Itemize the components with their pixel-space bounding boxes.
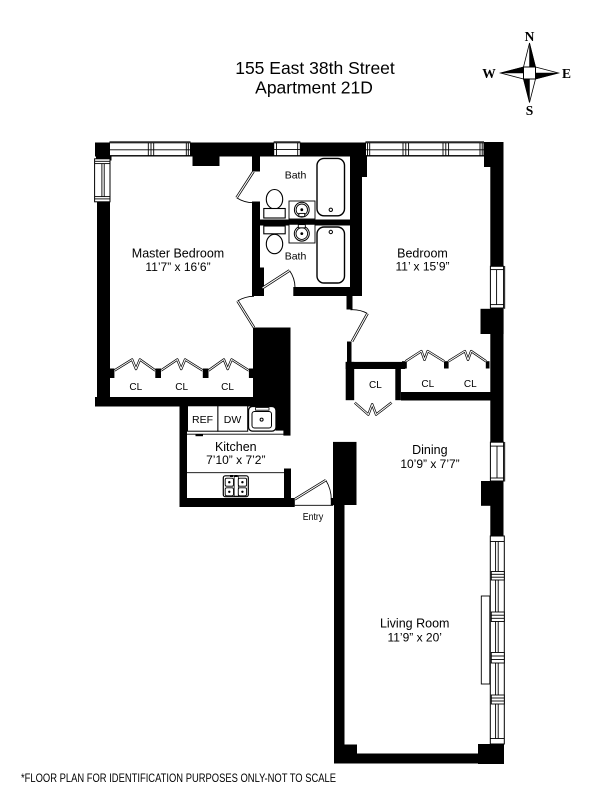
svg-text:CL: CL bbox=[175, 382, 188, 393]
svg-text:CL: CL bbox=[464, 379, 477, 390]
svg-text:CL: CL bbox=[221, 382, 234, 393]
svg-text:11’ x 15’9”: 11’ x 15’9” bbox=[395, 260, 449, 274]
svg-text:155 East 38th Street: 155 East 38th Street bbox=[235, 58, 395, 78]
svg-text:Apartment 21D: Apartment 21D bbox=[255, 78, 373, 98]
svg-text:Kitchen: Kitchen bbox=[215, 440, 257, 454]
svg-text:W: W bbox=[482, 66, 496, 81]
svg-text:CL: CL bbox=[369, 380, 382, 391]
svg-text:11’7” x 16’6”: 11’7” x 16’6” bbox=[145, 260, 210, 274]
svg-text:S: S bbox=[526, 103, 534, 118]
svg-text:CL: CL bbox=[421, 379, 434, 390]
svg-text:DW: DW bbox=[224, 414, 242, 426]
svg-text:Living Room: Living Room bbox=[380, 616, 449, 630]
svg-text:Bath: Bath bbox=[285, 251, 307, 263]
svg-text:Dining: Dining bbox=[412, 443, 447, 457]
svg-text:Master Bedroom: Master Bedroom bbox=[132, 246, 224, 260]
svg-text:Entry: Entry bbox=[303, 511, 324, 523]
svg-text:N: N bbox=[525, 29, 535, 44]
svg-text:E: E bbox=[562, 66, 571, 81]
svg-text:Bedroom: Bedroom bbox=[397, 246, 448, 260]
svg-text:11’9” x 20’: 11’9” x 20’ bbox=[387, 630, 441, 644]
svg-text:10’9” x 7’7”: 10’9” x 7’7” bbox=[400, 457, 459, 471]
svg-text:*FLOOR PLAN FOR IDENTIFICATION: *FLOOR PLAN FOR IDENTIFICATION PURPOSES … bbox=[21, 773, 336, 785]
svg-text:7’10” x 7’2”: 7’10” x 7’2” bbox=[206, 453, 265, 467]
svg-text:REF: REF bbox=[192, 414, 213, 426]
svg-text:CL: CL bbox=[129, 382, 142, 393]
svg-text:Bath: Bath bbox=[285, 170, 307, 182]
